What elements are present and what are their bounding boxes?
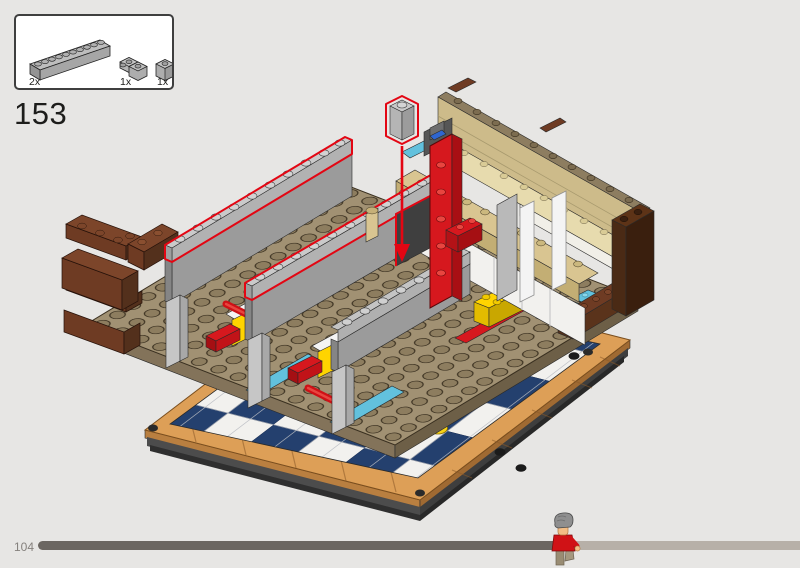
booth-pillar (166, 295, 180, 368)
white-column (520, 201, 534, 302)
instruction-page: 2x 1x 1x 153 104 (0, 0, 800, 568)
minifigure-progress-marker (546, 510, 582, 566)
minifigure-icon (552, 513, 580, 565)
page-number: 104 (14, 540, 34, 554)
part-count-label: 1x (157, 76, 169, 88)
black-stud (516, 464, 527, 472)
part-count-label: 2x (29, 76, 41, 88)
progress-bar-fill (38, 541, 555, 550)
booth-pillar (248, 333, 262, 408)
dark-brown-end-column (612, 204, 654, 316)
floating-brick-1x1 (390, 100, 414, 140)
white-column (552, 191, 566, 290)
black-stud (569, 352, 580, 360)
counter-fridge-panel (497, 194, 517, 301)
booth-pillar (332, 365, 346, 434)
black-stud (495, 448, 506, 456)
progress-bar-track (38, 541, 800, 550)
parts-callout: 2x 1x 1x (14, 14, 174, 90)
step-number: 153 (14, 96, 67, 132)
part-count-label: 1x (120, 76, 132, 88)
red-column (430, 134, 462, 308)
part-brick-1x10-icon (30, 40, 110, 80)
